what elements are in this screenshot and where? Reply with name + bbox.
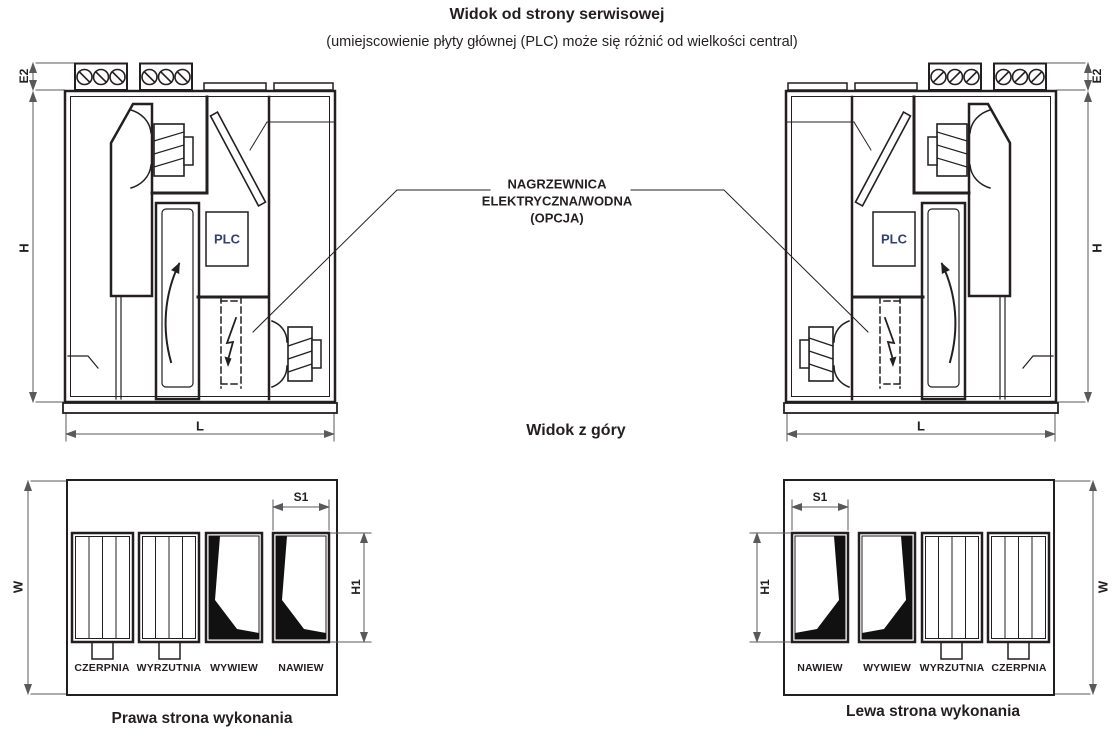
hvac-unit-drawing bbox=[0, 0, 1114, 736]
heater-callout-line2: ELEKTRYCZNA/WODNA bbox=[482, 193, 632, 210]
louvered-port bbox=[139, 533, 199, 659]
fan-inlet-cone bbox=[272, 321, 287, 342]
terminal-box bbox=[75, 64, 127, 91]
dim-label-h-right: H bbox=[1090, 243, 1105, 252]
left-variant-caption: Prawa strona wykonania bbox=[112, 710, 293, 728]
dim-label-h1-left: H1 bbox=[349, 579, 363, 594]
port-stub bbox=[159, 642, 180, 659]
roof-plate bbox=[274, 83, 333, 90]
flow-arrow bbox=[166, 264, 179, 362]
port-label: WYWIEW bbox=[210, 662, 258, 674]
diagram-page: Widok od strony serwisowej (umiejscowien… bbox=[0, 0, 1114, 736]
page-title: Widok od strony serwisowej bbox=[449, 6, 664, 24]
vertical-duct bbox=[156, 203, 199, 399]
dimension-s1 bbox=[273, 500, 329, 530]
callout-leader-line bbox=[253, 190, 490, 332]
exhaust-fan bbox=[272, 321, 321, 387]
dim-label-l-right: L bbox=[917, 419, 925, 434]
port-label: WYRZUTNIA bbox=[137, 662, 202, 674]
port-label: CZERPNIA bbox=[74, 662, 129, 674]
exchanger-panel bbox=[111, 104, 152, 296]
fan-blade-silhouette bbox=[209, 536, 259, 639]
dim-label-e2-left: E2 bbox=[17, 69, 31, 84]
page-subtitle: (umiejscowienie płyty głównej (PLC) może… bbox=[326, 34, 797, 50]
bypass-damper bbox=[211, 112, 266, 206]
port-stub bbox=[92, 642, 113, 659]
fan-port bbox=[273, 533, 329, 642]
fan-port bbox=[206, 533, 262, 642]
dim-label-w-left: W bbox=[11, 581, 26, 593]
dim-label-w-right: W bbox=[1096, 581, 1111, 593]
fan-blade-silhouette bbox=[276, 536, 326, 639]
port-label: NAWIEW bbox=[278, 662, 324, 674]
dimension-e2 bbox=[33, 63, 76, 90]
dim-label-h1-right: H1 bbox=[758, 579, 772, 594]
port-label: NAWIEW bbox=[797, 662, 843, 674]
port-label: WYWIEW bbox=[863, 662, 911, 674]
dim-label-s1-right: S1 bbox=[813, 490, 828, 504]
dimension-w bbox=[28, 481, 66, 694]
plc-label-right: PLC bbox=[881, 232, 907, 247]
service-view-unit-drawing-mirrored bbox=[631, 63, 1088, 441]
roof-plate bbox=[204, 83, 266, 90]
port-label: CZERPNIA bbox=[991, 662, 1046, 674]
dimension-h bbox=[33, 92, 64, 402]
port-label: WYRZUTNIA bbox=[920, 662, 985, 674]
plc-label-left: PLC bbox=[214, 232, 240, 247]
lightning-bolt bbox=[227, 318, 236, 360]
heater-callout-line3: (OPCJA) bbox=[482, 210, 632, 227]
dim-label-e2-right: E2 bbox=[1090, 69, 1104, 84]
heater-callout: NAGRZEWNICA ELEKTRYCZNA/WODNA (OPCJA) bbox=[482, 176, 632, 227]
heater-callout-line1: NAGRZEWNICA bbox=[482, 176, 632, 193]
right-variant-caption: Lewa strona wykonania bbox=[846, 703, 1020, 721]
panel-seam bbox=[250, 122, 334, 150]
top-view-heading: Widok z góry bbox=[526, 422, 625, 440]
lightning-bolt-tip bbox=[225, 357, 232, 368]
fan-impeller bbox=[288, 327, 312, 381]
dim-label-l-left: L bbox=[196, 419, 204, 434]
base-frame bbox=[63, 403, 337, 413]
corner-foot bbox=[68, 356, 98, 368]
terminal-box bbox=[140, 64, 192, 91]
dim-label-s1-left: S1 bbox=[294, 490, 309, 504]
service-view-unit-drawing bbox=[33, 63, 490, 441]
louvered-port bbox=[72, 533, 133, 659]
dim-label-h-left: H bbox=[17, 243, 32, 252]
fan-inlet-cone bbox=[272, 366, 287, 387]
